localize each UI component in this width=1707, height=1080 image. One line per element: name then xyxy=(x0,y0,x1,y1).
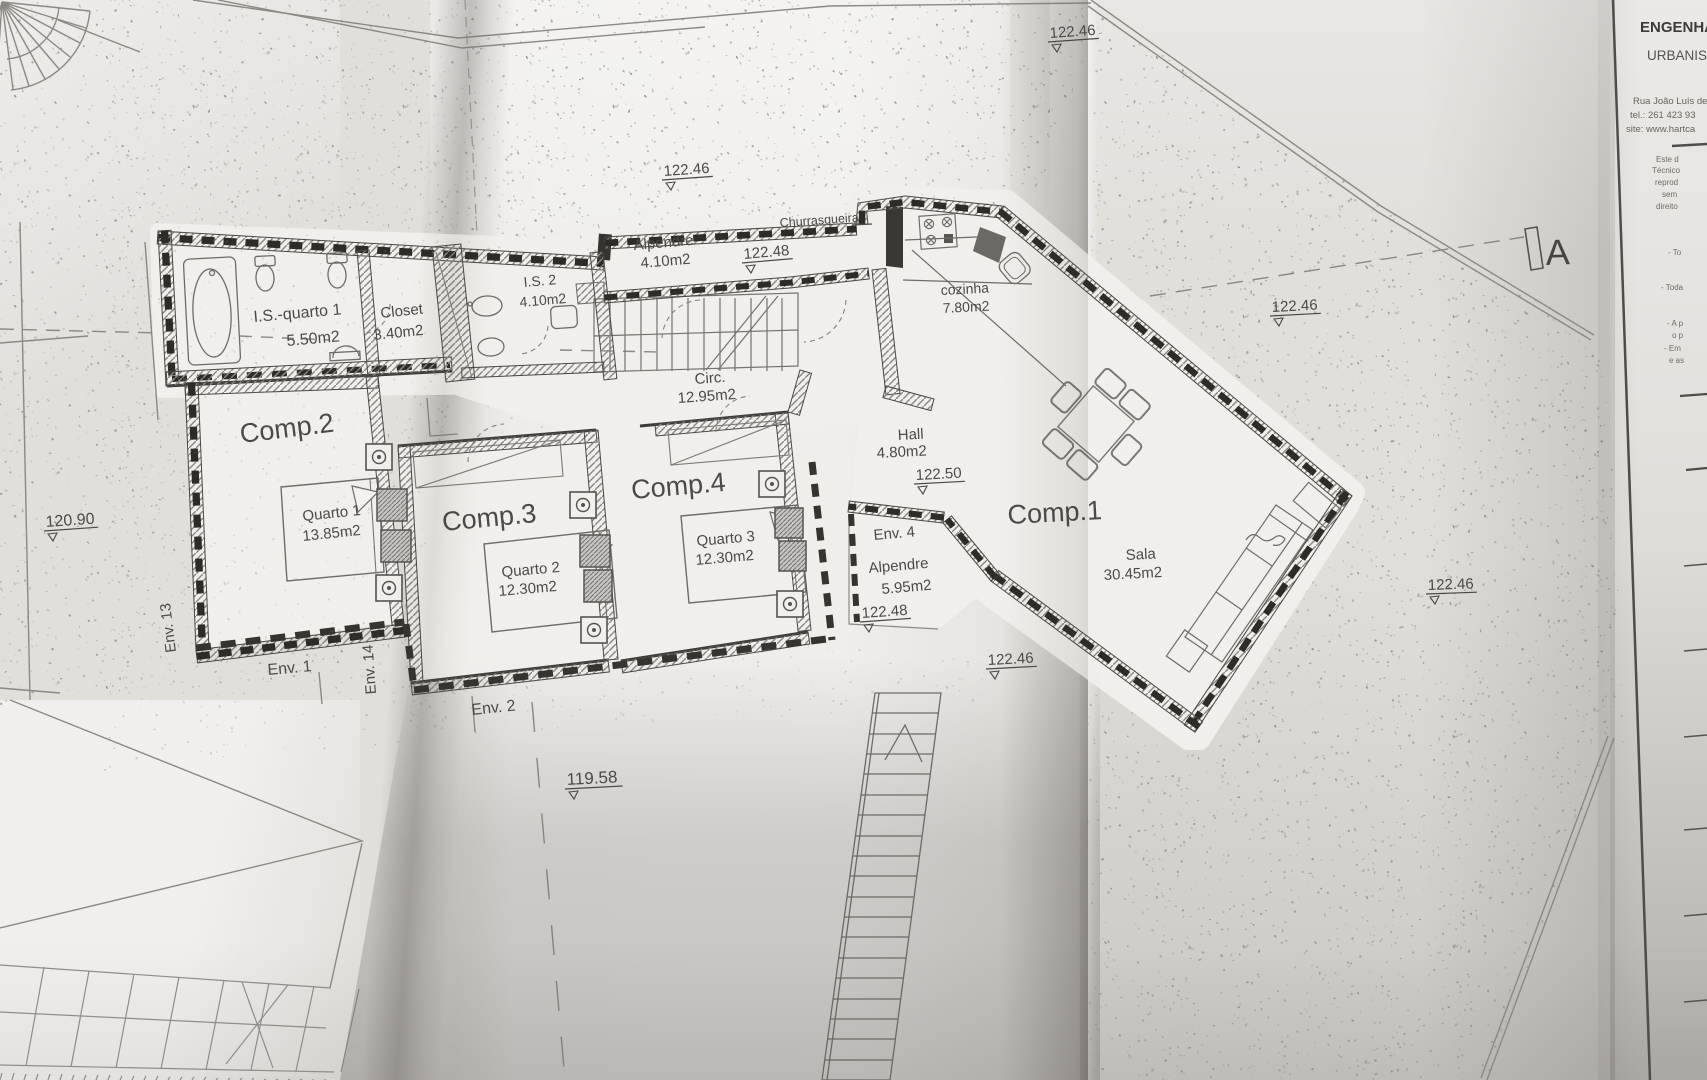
svg-text:Rua João Luís de: Rua João Luís de xyxy=(1633,96,1707,107)
svg-text:Técnico: Técnico xyxy=(1652,166,1681,175)
svg-text:- A p: - A p xyxy=(1667,319,1684,328)
svg-text:119.58: 119.58 xyxy=(566,767,618,789)
svg-text:sem: sem xyxy=(1662,190,1677,199)
svg-text:Circ.: Circ. xyxy=(694,369,726,388)
svg-text:4.80m2: 4.80m2 xyxy=(876,442,927,462)
svg-text:- Em: - Em xyxy=(1664,344,1681,353)
svg-text:URBANISMO: URBANISMO xyxy=(1647,48,1707,63)
svg-text:o p: o p xyxy=(1672,331,1684,340)
svg-text:Sala: Sala xyxy=(1125,545,1157,564)
svg-text:direito: direito xyxy=(1656,202,1678,211)
svg-text:reprod: reprod xyxy=(1655,178,1678,187)
svg-text:- To: - To xyxy=(1668,248,1682,257)
svg-text:122.46: 122.46 xyxy=(987,650,1034,669)
svg-text:cozinha: cozinha xyxy=(940,279,989,298)
svg-text:ENGENHARIA: ENGENHARIA xyxy=(1640,19,1707,36)
svg-text:tel.: 261 423 93: tel.: 261 423 93 xyxy=(1630,110,1696,121)
svg-text:site: www.hartca: site: www.hartca xyxy=(1626,124,1696,135)
svg-text:A: A xyxy=(1545,231,1570,273)
svg-text:- Toda: - Toda xyxy=(1661,283,1684,292)
svg-text:122.50: 122.50 xyxy=(915,465,962,484)
svg-text:I.S. 2: I.S. 2 xyxy=(523,271,557,290)
svg-text:30.45m2: 30.45m2 xyxy=(1103,564,1162,584)
svg-text:Env. 4: Env. 4 xyxy=(873,523,916,544)
svg-text:122.46: 122.46 xyxy=(1271,297,1318,316)
svg-text:7.80m2: 7.80m2 xyxy=(942,298,990,316)
svg-text:Hall: Hall xyxy=(897,426,924,444)
svg-text:Comp.1: Comp.1 xyxy=(1007,495,1103,530)
svg-text:e as: e as xyxy=(1669,356,1684,365)
svg-text:Env. 14: Env. 14 xyxy=(360,644,380,695)
svg-text:Este d: Este d xyxy=(1656,155,1679,164)
svg-text:122.46: 122.46 xyxy=(1428,575,1474,594)
